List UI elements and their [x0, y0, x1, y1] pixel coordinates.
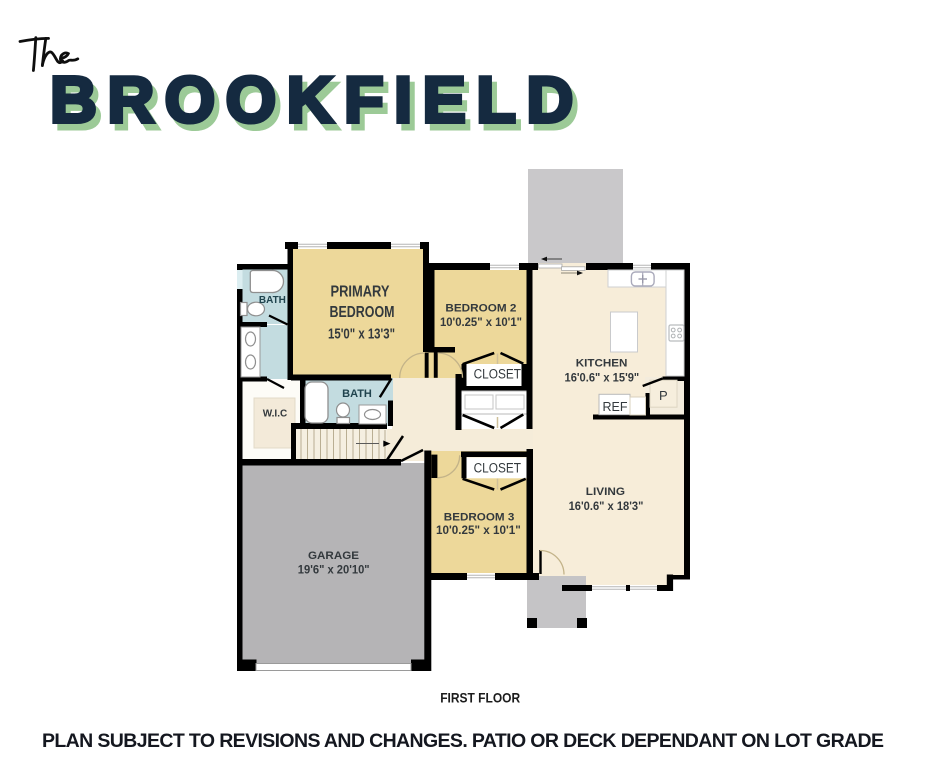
svg-text:BEDROOM: BEDROOM — [330, 304, 395, 321]
svg-text:BATH: BATH — [259, 295, 286, 306]
svg-text:LIVING: LIVING — [586, 486, 625, 498]
svg-text:BROOKFIELD: BROOKFIELD — [50, 63, 584, 136]
svg-text:19'6" x 20'10": 19'6" x 20'10" — [298, 562, 370, 576]
svg-text:P: P — [659, 388, 668, 403]
svg-text:CLOSET: CLOSET — [474, 461, 521, 476]
svg-text:CLOSET: CLOSET — [474, 367, 521, 382]
svg-text:GARAGE: GARAGE — [308, 550, 359, 562]
svg-text:BEDROOM 2: BEDROOM 2 — [445, 303, 516, 315]
svg-text:10'0.25" x 10'1": 10'0.25" x 10'1" — [436, 523, 521, 537]
svg-text:PRIMARY: PRIMARY — [331, 284, 391, 301]
svg-text:REF: REF — [603, 400, 628, 414]
svg-text:16'0.6" x 15'9": 16'0.6" x 15'9" — [565, 371, 640, 385]
svg-text:KITCHEN: KITCHEN — [576, 358, 628, 370]
svg-text:BATH: BATH — [342, 388, 372, 400]
svg-text:FIRST FLOOR: FIRST FLOOR — [440, 691, 520, 706]
svg-text:16'0.6" x 18'3": 16'0.6" x 18'3" — [569, 499, 644, 513]
svg-text:10'0.25" x 10'1": 10'0.25" x 10'1" — [440, 315, 522, 329]
svg-text:15'0" x 13'3": 15'0" x 13'3" — [328, 326, 395, 343]
svg-text:BEDROOM 3: BEDROOM 3 — [444, 511, 515, 523]
svg-text:W.I.C: W.I.C — [263, 409, 287, 420]
svg-text:PLAN SUBJECT TO REVISIONS AND: PLAN SUBJECT TO REVISIONS AND CHANGES. P… — [42, 730, 884, 752]
